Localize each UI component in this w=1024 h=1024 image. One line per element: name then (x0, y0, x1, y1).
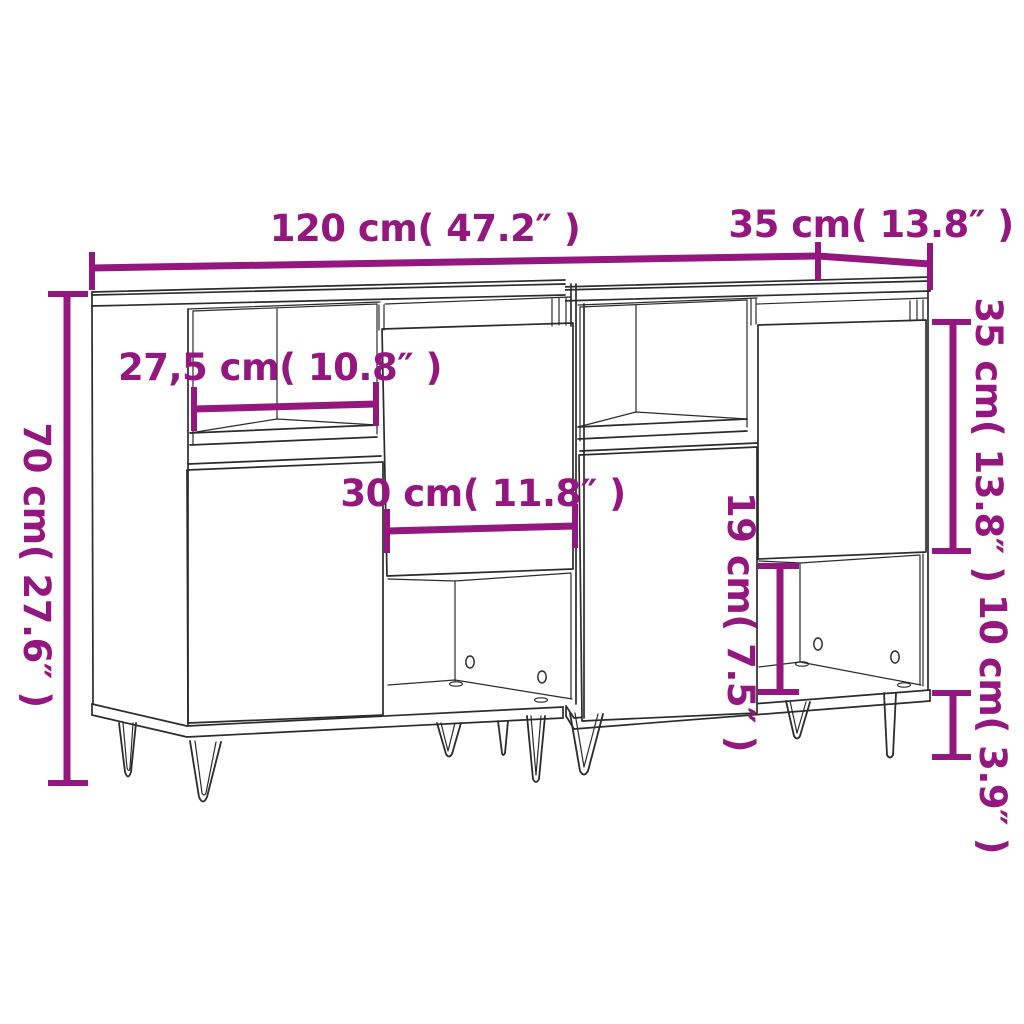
dimension-diagram: 120 cm( 47.2″ ) 35 cm( 13.8″ ) 70 cm( 27… (0, 0, 1024, 1024)
hairpin-leg (119, 723, 136, 777)
dim-total-height: 70 cm( 27.6″ ) (15, 294, 88, 783)
hairpin-leg (437, 723, 461, 757)
dim-label-depth: 35 cm( 13.8″ ) (728, 203, 1013, 246)
dim-label-shelf-width-left: 27,5 cm( 10.8″ ) (118, 346, 442, 389)
dim-label-leg-height: 10 cm( 3.9″ ) (971, 594, 1014, 854)
dim-label-shelf-width-center: 30 cm( 11.8″ ) (340, 472, 625, 515)
dim-door-height-right: 35 cm( 13.8″ ) (932, 297, 1010, 582)
dim-label-door-height-right: 35 cm( 13.8″ ) (967, 297, 1010, 582)
dimension-diagram-canvas: 120 cm( 47.2″ ) 35 cm( 13.8″ ) 70 cm( 27… (0, 0, 1024, 1024)
hairpin-leg (527, 716, 545, 782)
hairpin-leg (190, 741, 221, 802)
dim-label-total-width: 120 cm( 47.2″ ) (270, 207, 581, 250)
dim-label-compartment-height: 19 cm( 7.5″ ) (719, 492, 762, 752)
door-panel (758, 320, 926, 559)
dim-label-total-height: 70 cm( 27.6″ ) (15, 422, 58, 707)
dim-depth: 35 cm( 13.8″ ) (728, 203, 1013, 290)
dim-leg-height: 10 cm( 3.9″ ) (932, 594, 1014, 854)
hairpin-leg (498, 721, 508, 755)
dim-total-width: 120 cm( 47.2″ ) (92, 207, 818, 290)
